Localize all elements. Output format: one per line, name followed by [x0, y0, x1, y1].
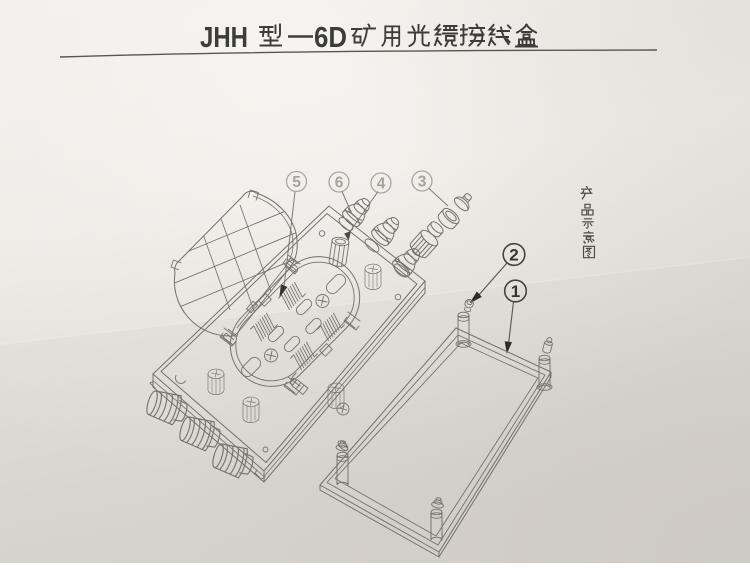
svg-text:2: 2 — [509, 246, 518, 265]
svg-text:4: 4 — [377, 176, 386, 193]
svg-text:6: 6 — [335, 175, 344, 192]
svg-text:1: 1 — [511, 282, 520, 301]
svg-text:6D: 6D — [314, 22, 347, 54]
svg-text:JHH: JHH — [200, 22, 248, 54]
svg-text:3: 3 — [418, 174, 427, 191]
svg-text:5: 5 — [292, 174, 301, 191]
